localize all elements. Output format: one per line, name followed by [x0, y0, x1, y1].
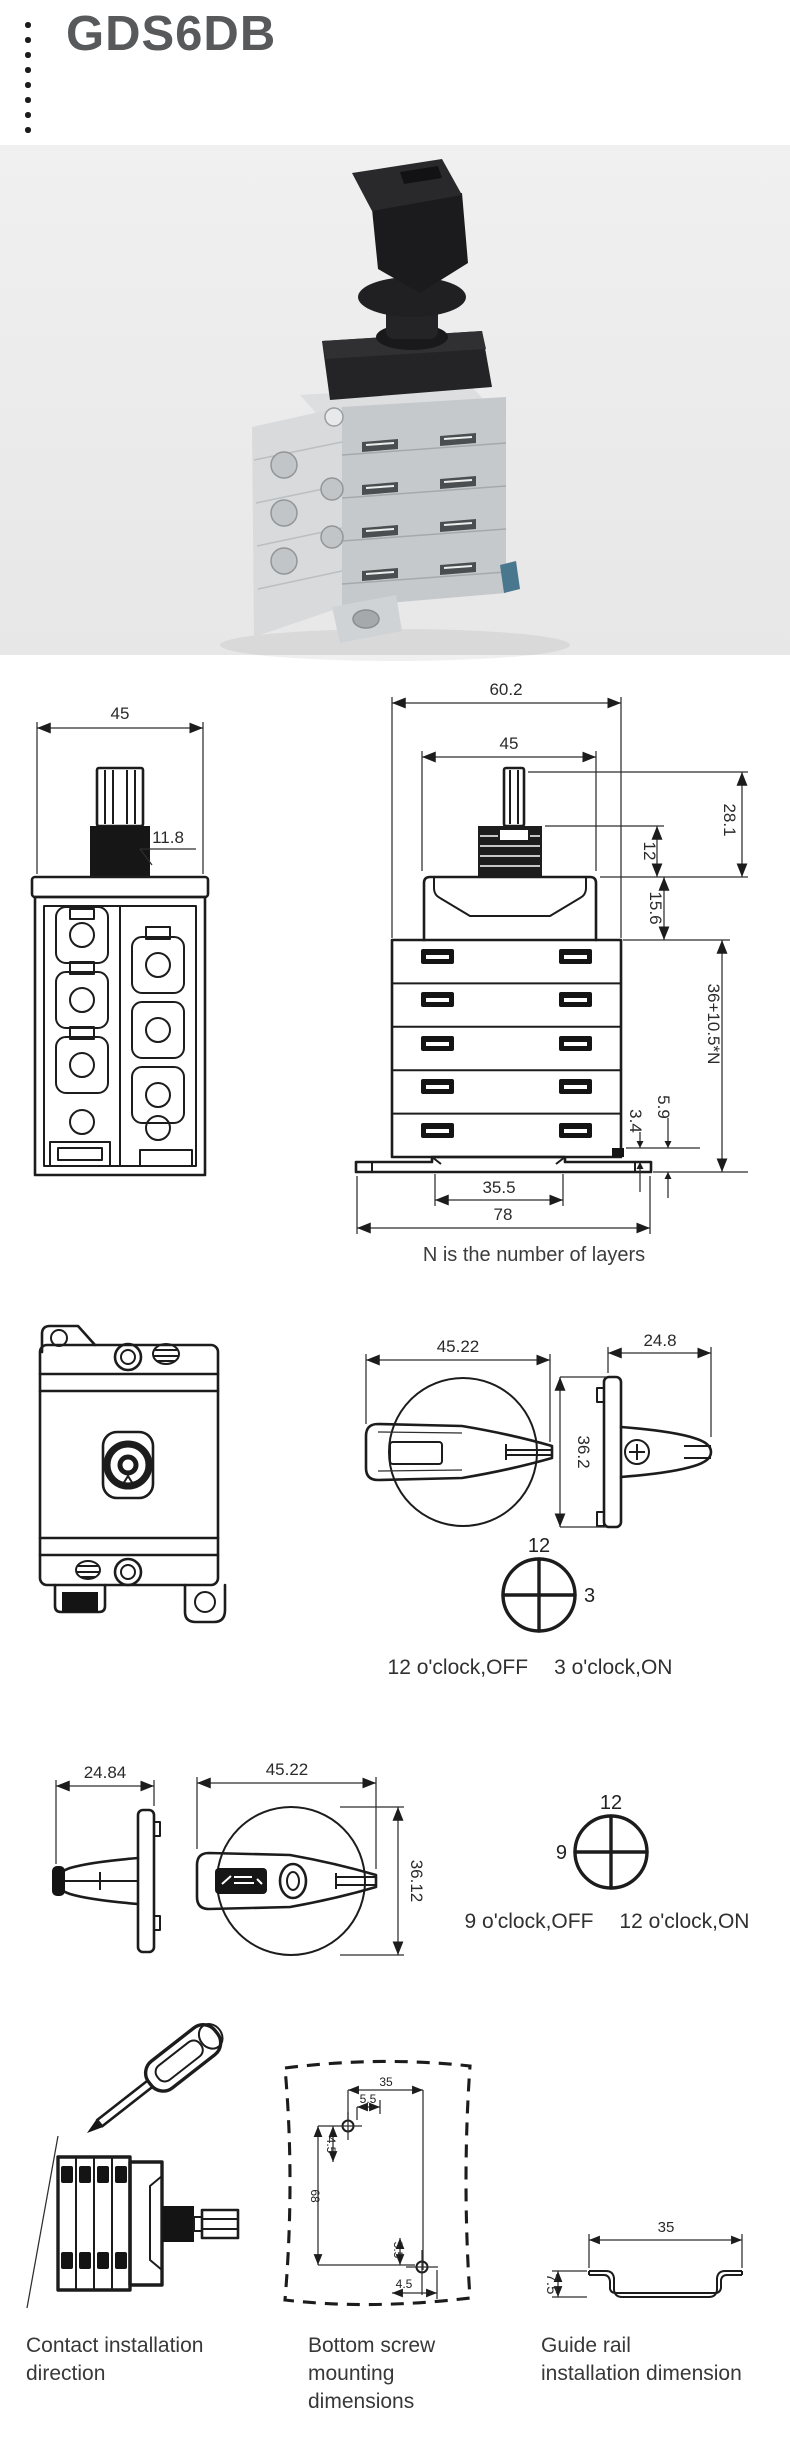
enclosure-drawing: [40, 1326, 225, 1622]
layers-note: N is the number of layers: [364, 1244, 704, 1267]
dim-handle-side-width: 24.8: [643, 1331, 676, 1350]
handle-front-view-2: 45.22 36.12: [197, 1760, 426, 1955]
caption-line: Contact installation: [26, 2332, 276, 2360]
handle-drawings-left: 24.84 45.22 36.12: [0, 1700, 790, 1980]
dim-rail-width: 35: [658, 2219, 675, 2236]
caption-line: Guide rail: [541, 2332, 790, 2360]
contact-installation-drawing: [27, 2016, 238, 2308]
dim-handle2-front-width: 45.22: [266, 1760, 309, 1779]
caption-line: Bottom screw: [308, 2332, 498, 2360]
caption-line: installation dimension: [541, 2360, 790, 2388]
dim-handle2-side-width: 24.84: [84, 1763, 127, 1782]
dim-handle2-height: 36.12: [407, 1860, 426, 1903]
bullet-dot: [25, 67, 31, 73]
page-title: GDS6DB: [66, 6, 276, 62]
dim-screw-bottom-inset: 4.5: [396, 2277, 413, 2291]
guide-rail-drawing: 35 7.5: [543, 2219, 742, 2297]
bullet-dot: [25, 112, 31, 118]
dimension-drawings: 45 11.8: [0, 680, 790, 1280]
dim-shaft: 11.8: [152, 828, 184, 847]
handle-front-view: 45.22: [366, 1337, 552, 1526]
dim-clip-gap: 3.4: [626, 1109, 645, 1133]
bullet-dot: [25, 22, 31, 28]
caption-guide-rail: Guide rail installation dimension: [541, 2332, 790, 2388]
bullet-dot: [25, 127, 31, 133]
caption-line: direction: [26, 2360, 276, 2388]
clock-caption-right: 12 o'clock,OFF 3 o'clock,ON: [320, 1656, 740, 1680]
dim-foot: 5.9: [654, 1095, 673, 1119]
installation-drawings: 35 5.5 4.5 68 5.5 4.5 3: [0, 2020, 790, 2320]
bullet-dot: [25, 37, 31, 43]
dim-handle-front-width: 45.22: [437, 1337, 480, 1356]
clock-symbol-9-12: 12 9: [556, 1792, 647, 1888]
dim-screw-bottom-offset: 5.5: [391, 2242, 405, 2259]
bottom-screw-drawing: 35 5.5 4.5 68 5.5 4.5: [285, 2061, 470, 2304]
clock-side-label-2: 9: [556, 1842, 567, 1864]
off-position-text: 12 o'clock,OFF: [388, 1656, 529, 1680]
handle-side-view: 24.8 36.2: [560, 1331, 711, 1527]
off-position-text-2: 9 o'clock,OFF: [465, 1910, 594, 1934]
dim-overall-width: 60.2: [489, 680, 522, 699]
front-view-drawing: 45 11.8: [32, 704, 208, 1175]
bullet-dot: [25, 82, 31, 88]
dim-rail-height: 7.5: [543, 2274, 560, 2295]
dim-rail-slot: 35.5: [482, 1178, 515, 1197]
dim-handle-height: 36.2: [574, 1435, 593, 1468]
product-photo: [0, 145, 790, 655]
side-view-drawing: 60.2 45: [356, 680, 748, 1234]
dim-screw-height: 68: [308, 2189, 322, 2203]
clock-side-label: 3: [584, 1585, 595, 1607]
dim-base: 78: [494, 1205, 513, 1224]
dim-thread: 12: [640, 842, 659, 861]
dim-screw-top-offset: 5.5: [360, 2092, 377, 2106]
clock-symbol-12-3: 12 3: [503, 1535, 595, 1631]
bullet-dot: [25, 97, 31, 103]
caption-line: dimensions: [308, 2388, 498, 2416]
caption-bottom-screw: Bottom screw mounting dimensions: [308, 2332, 498, 2416]
dim-screw-top-inset: 4.5: [324, 2137, 338, 2154]
layer-slots: [421, 949, 592, 1138]
handle-side-view-2: 24.84: [52, 1763, 160, 1952]
rail-clip: [612, 1148, 624, 1157]
dim-front-width: 45: [111, 704, 130, 723]
dim-stack: 36+10.5*N: [704, 984, 723, 1065]
dim-body-width: 45: [500, 734, 519, 753]
clock-top-label-2: 12: [600, 1792, 622, 1814]
dim-head: 15.6: [646, 891, 665, 924]
handle-drawings-right: 45.22 24.8 36.2: [0, 1320, 790, 1680]
dim-shaft-total: 28.1: [720, 803, 739, 836]
on-position-text-2: 12 o'clock,ON: [619, 1910, 749, 1934]
clock-caption-left: 9 o'clock,OFF 12 o'clock,ON: [400, 1910, 790, 1934]
bullet-dots-decoration: [25, 22, 31, 133]
caption-line: mounting: [308, 2360, 498, 2388]
on-position-text: 3 o'clock,ON: [554, 1656, 672, 1680]
dim-screw-width: 35: [379, 2075, 393, 2089]
screwdriver-icon: [77, 2016, 230, 2146]
panel-dashed-outline: [285, 2061, 470, 2304]
datasheet-page: GDS6DB: [0, 0, 790, 2449]
caption-contact-installation: Contact installation direction: [26, 2332, 276, 2388]
bullet-dot: [25, 52, 31, 58]
clock-top-label: 12: [528, 1535, 550, 1557]
